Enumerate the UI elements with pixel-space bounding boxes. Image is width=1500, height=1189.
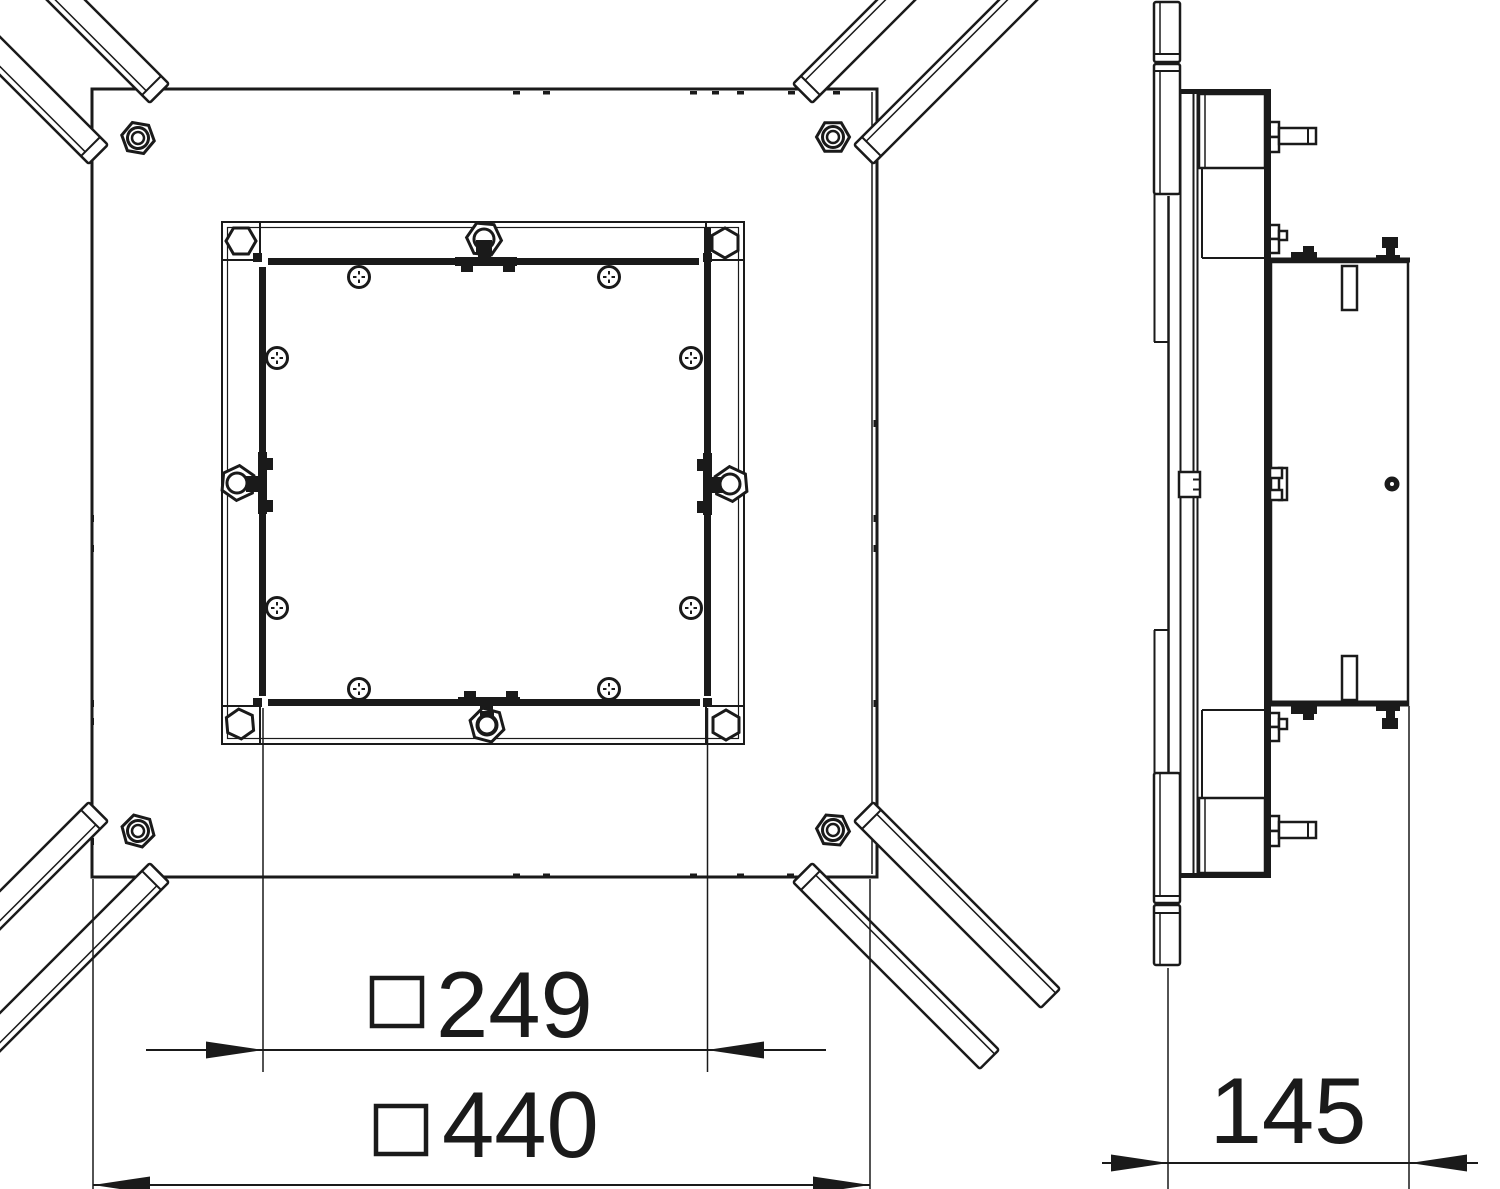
earthing-bolt-icon	[1382, 718, 1398, 729]
knockout-slot	[1342, 266, 1357, 310]
earthing-bolt-icon	[1382, 237, 1398, 248]
levelling-bolt-icon	[1279, 128, 1316, 144]
dimension-inner-value: 249	[436, 952, 593, 1057]
dimension-depth-value: 145	[1210, 1058, 1367, 1163]
bottom-cassette	[1179, 710, 1316, 876]
side-conduit-stubs	[1154, 2, 1180, 965]
hex-nut-icon	[817, 123, 850, 152]
frame-corner-bolt-icon	[226, 228, 256, 254]
dimension-outer-value: 440	[442, 1072, 599, 1177]
top-cassette	[1179, 92, 1316, 259]
arrowhead-icon	[707, 1042, 764, 1059]
drawing-canvas: 249 440	[0, 0, 1500, 1189]
square-symbol-icon	[372, 978, 422, 1026]
side-view: 145	[1102, 2, 1478, 1189]
cover-plate	[92, 89, 877, 877]
technical-drawing: 249 440	[0, 0, 1500, 1189]
arrowhead-icon	[93, 1177, 150, 1189]
conduit-stub	[854, 802, 1060, 1008]
plan-view: 249 440	[0, 0, 1060, 1189]
knockout-slot	[1342, 656, 1357, 700]
arrowhead-icon	[1111, 1155, 1168, 1172]
square-symbol-icon	[376, 1106, 426, 1154]
levelling-bolt-icon	[1279, 822, 1316, 838]
arrowhead-icon	[813, 1177, 870, 1189]
arrowhead-icon	[1410, 1155, 1467, 1172]
conduit-stub	[793, 863, 999, 1069]
arrowhead-icon	[206, 1042, 263, 1059]
